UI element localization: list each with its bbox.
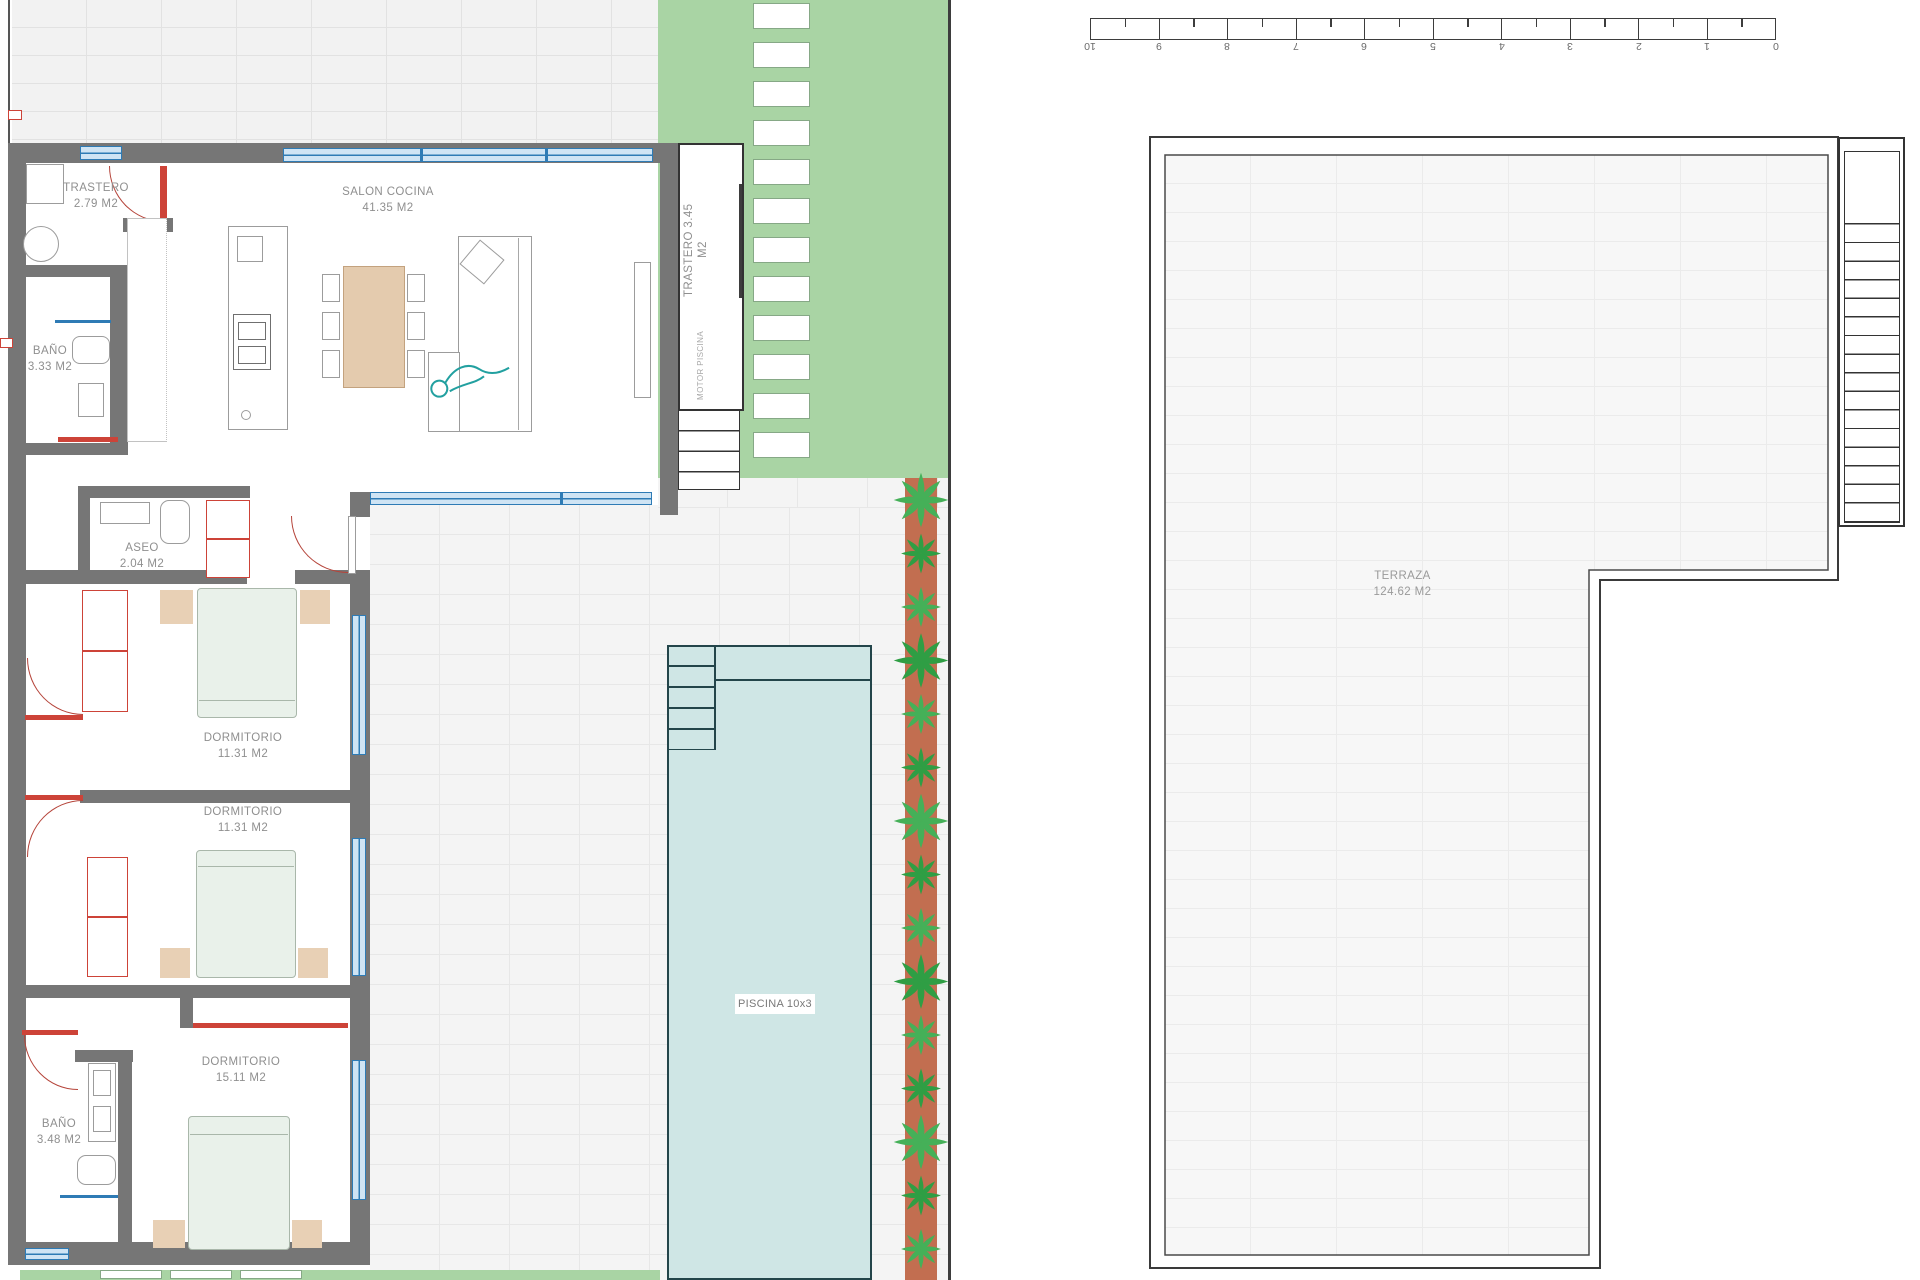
island-dot bbox=[241, 410, 251, 420]
pool-label-text: PISCINA 10x3 bbox=[738, 998, 812, 1010]
scale-label: 1 bbox=[1704, 40, 1710, 52]
door-leaf-dorm2 bbox=[25, 795, 83, 800]
shower-line-bano2 bbox=[60, 1195, 118, 1198]
scale-cell bbox=[1571, 19, 1640, 39]
pool-lane-line bbox=[716, 679, 870, 681]
room-label-trastero2: TRASTERO 3.45 M2 bbox=[682, 195, 710, 305]
wall-dorm2-bottom bbox=[25, 985, 370, 998]
plant-icon bbox=[901, 587, 941, 627]
sink-bano1 bbox=[78, 383, 104, 417]
room-name: TERRAZA bbox=[1330, 568, 1475, 584]
room-area: 3.33 M2 bbox=[10, 359, 90, 375]
plot-boundary-right bbox=[948, 0, 951, 1280]
plant-icon bbox=[894, 473, 949, 528]
room-label-dorm1: DORMITORIO 11.31 M2 bbox=[172, 730, 314, 762]
room-area: 11.31 M2 bbox=[172, 820, 314, 836]
window-dorm3 bbox=[352, 1060, 366, 1200]
wall-aseo-top bbox=[78, 486, 250, 498]
window-tick bbox=[560, 492, 563, 505]
chair bbox=[407, 312, 425, 340]
slider-dorm3 bbox=[193, 1023, 348, 1028]
wall-corridor-stub bbox=[180, 985, 193, 1028]
bed-dorm1 bbox=[197, 588, 297, 718]
dining-table bbox=[343, 266, 405, 388]
room-label-aseo: ASEO 2.04 M2 bbox=[98, 540, 186, 572]
scale-label: 3 bbox=[1567, 40, 1573, 52]
scale-cell bbox=[1091, 19, 1160, 39]
wall-bano1-bottom bbox=[8, 443, 128, 455]
room-name: ASEO bbox=[98, 540, 186, 556]
toilet-bano2 bbox=[77, 1155, 116, 1185]
window-dorm2 bbox=[352, 838, 366, 976]
stepping-stone bbox=[753, 81, 810, 107]
stepping-stones-bottom bbox=[0, 1270, 400, 1280]
room-area: 15.11 M2 bbox=[170, 1070, 312, 1086]
wall-bano1-right bbox=[110, 265, 128, 455]
wardrobe-shelf bbox=[206, 538, 250, 540]
nightstand bbox=[298, 948, 328, 978]
scale-label: 4 bbox=[1499, 40, 1505, 52]
wardrobe-shelf bbox=[87, 916, 128, 918]
window-tick bbox=[545, 148, 548, 162]
north-patio-tiles bbox=[12, 0, 658, 143]
window-north-small bbox=[80, 146, 122, 160]
stepping-stone bbox=[753, 120, 810, 146]
window-tick bbox=[420, 148, 423, 162]
wall-west bbox=[8, 143, 26, 1265]
room-label-bano2: BAÑO 3.48 M2 bbox=[17, 1116, 101, 1148]
room-name: TRASTERO bbox=[48, 180, 144, 196]
chair bbox=[322, 274, 340, 302]
plant-icon bbox=[894, 633, 949, 688]
room-label-salon: SALON COCINA 41.35 M2 bbox=[318, 184, 458, 216]
door-leaf-dorm1 bbox=[25, 715, 83, 720]
chair bbox=[407, 274, 425, 302]
plant-icon bbox=[901, 534, 941, 574]
room-area: 2.04 M2 bbox=[98, 556, 186, 572]
stepping-stone bbox=[753, 42, 810, 68]
bed-fold-line bbox=[198, 866, 294, 867]
wall-east-salon bbox=[660, 143, 678, 515]
stepping-stone bbox=[240, 1270, 302, 1279]
plant-icon bbox=[894, 1115, 949, 1170]
storage-door-line bbox=[739, 184, 742, 298]
pool-label: PISCINA 10x3 bbox=[735, 994, 815, 1014]
pool-steps bbox=[668, 646, 716, 750]
room-name: DORMITORIO bbox=[172, 730, 314, 746]
plant-icon bbox=[901, 855, 941, 895]
oven-detail bbox=[238, 322, 266, 340]
window-bano2 bbox=[25, 1248, 69, 1260]
wall-dorm1-top-b bbox=[295, 570, 370, 584]
plant-icon bbox=[901, 748, 941, 788]
door-leaf-entry bbox=[348, 516, 356, 574]
bed-dorm3 bbox=[188, 1116, 290, 1250]
stepping-stone bbox=[753, 354, 810, 380]
red-marker bbox=[8, 110, 22, 120]
tv-sideboard bbox=[634, 262, 651, 398]
nightstand bbox=[160, 590, 193, 624]
room-label-trastero1: TRASTERO 2.79 M2 bbox=[48, 180, 144, 212]
stepping-stones bbox=[753, 0, 810, 478]
scale-cell bbox=[1639, 19, 1708, 39]
plant-icon bbox=[894, 794, 949, 849]
scale-bar-labels: 109876543210 bbox=[1090, 40, 1776, 56]
scale-cell bbox=[1297, 19, 1366, 39]
window-south-salon bbox=[370, 492, 652, 505]
door-arc-entry bbox=[291, 516, 348, 573]
room-area: 11.31 M2 bbox=[172, 746, 314, 762]
stepping-stone bbox=[100, 1270, 162, 1279]
plant-icon bbox=[901, 1176, 941, 1216]
scale-label: 10 bbox=[1084, 40, 1096, 52]
stepping-stone bbox=[753, 198, 810, 224]
person-icon bbox=[422, 348, 522, 406]
scale-cell bbox=[1434, 19, 1503, 39]
bed-fold-line bbox=[199, 700, 295, 701]
room-name: TRASTERO bbox=[683, 231, 695, 297]
scale-label: 5 bbox=[1430, 40, 1436, 52]
chair bbox=[322, 350, 340, 378]
toilet-aseo bbox=[160, 500, 190, 544]
stepping-stone bbox=[170, 1270, 232, 1279]
nightstand bbox=[160, 948, 190, 978]
vanity-basin bbox=[93, 1070, 111, 1096]
bed-fold-line bbox=[190, 1134, 288, 1135]
round-basket bbox=[23, 226, 59, 262]
wall-bano1-top bbox=[8, 265, 110, 277]
oven-detail bbox=[238, 346, 266, 364]
room-label-dorm3: DORMITORIO 15.11 M2 bbox=[170, 1054, 312, 1086]
plant-icon bbox=[901, 1069, 941, 1109]
plant-icon bbox=[901, 1229, 941, 1269]
wardrobe-shelf bbox=[82, 650, 128, 652]
wall-dorm1-dorm2 bbox=[80, 790, 370, 803]
stepping-stone bbox=[753, 315, 810, 341]
scale-label: 7 bbox=[1293, 40, 1299, 52]
scale-cell bbox=[1160, 19, 1229, 39]
kitchen-counter bbox=[127, 218, 167, 442]
scale-cell bbox=[1365, 19, 1434, 39]
scale-label: 2 bbox=[1636, 40, 1642, 52]
stepping-stone bbox=[753, 159, 810, 185]
wall-aseo-left bbox=[78, 486, 90, 581]
room-name: DORMITORIO bbox=[170, 1054, 312, 1070]
room-label-dorm2: DORMITORIO 11.31 M2 bbox=[172, 804, 314, 836]
stepping-stone bbox=[753, 3, 810, 29]
stepping-stone bbox=[753, 393, 810, 419]
stepping-stone bbox=[753, 432, 810, 458]
terrace-outline bbox=[1145, 130, 1910, 1275]
outdoor-steps bbox=[678, 410, 740, 490]
stair-treads bbox=[1845, 206, 1899, 522]
wall-bano2-right bbox=[118, 1050, 132, 1242]
room-area: 41.35 M2 bbox=[318, 200, 458, 216]
scale-cell bbox=[1708, 19, 1776, 39]
floor-plan-canvas: PISCINA 10x3 TRASTERO 3.45 M2 MOTOR PISC… bbox=[0, 0, 1920, 1280]
door-arc-bano2 bbox=[24, 1035, 78, 1090]
scale-label: 6 bbox=[1361, 40, 1367, 52]
room-name: DORMITORIO bbox=[172, 804, 314, 820]
wall-south-salon-pier bbox=[350, 492, 370, 517]
plant-icon bbox=[894, 954, 949, 1009]
room-area: 124.62 M2 bbox=[1330, 584, 1475, 600]
scale-label: 8 bbox=[1224, 40, 1230, 52]
scale-bar-cells bbox=[1091, 19, 1775, 39]
nightstand bbox=[300, 590, 330, 624]
slider-bano1 bbox=[58, 437, 118, 442]
nightstand bbox=[292, 1220, 322, 1248]
window-north-band bbox=[283, 148, 653, 162]
room-label-bano1: BAÑO 3.33 M2 bbox=[10, 343, 90, 375]
label-motor-piscina: MOTOR PISCINA bbox=[696, 318, 706, 413]
room-name: BAÑO bbox=[10, 343, 90, 359]
scale-cell bbox=[1228, 19, 1297, 39]
room-label-terraza: TERRAZA 124.62 M2 bbox=[1330, 568, 1475, 600]
door-arc-dorm2 bbox=[27, 800, 83, 857]
scale-label: 0 bbox=[1773, 40, 1779, 52]
room-name: BAÑO bbox=[17, 1116, 101, 1132]
plot-boundary-left bbox=[8, 0, 10, 143]
window-dorm1 bbox=[352, 615, 366, 755]
stepping-stone bbox=[753, 237, 810, 263]
scale-bar bbox=[1090, 18, 1776, 40]
door-arc-dorm1 bbox=[27, 658, 83, 715]
room-area: 2.79 M2 bbox=[48, 196, 144, 212]
plant-icon bbox=[901, 908, 941, 948]
scale-cell bbox=[1502, 19, 1571, 39]
plant-icon bbox=[901, 1015, 941, 1055]
island-sink bbox=[237, 236, 263, 262]
nightstand bbox=[153, 1220, 185, 1248]
plant-icon bbox=[901, 694, 941, 734]
scale-label: 9 bbox=[1156, 40, 1162, 52]
room-name: SALON COCINA bbox=[318, 184, 458, 200]
terrace-stairs-inner bbox=[1844, 151, 1900, 523]
chair bbox=[322, 312, 340, 340]
bed-dorm2 bbox=[196, 850, 296, 978]
room-name: MOTOR PISCINA bbox=[696, 331, 705, 400]
shower-line-bano1 bbox=[55, 320, 111, 323]
sink-aseo bbox=[100, 502, 150, 524]
stepping-stone bbox=[753, 276, 810, 302]
room-area: 3.48 M2 bbox=[17, 1132, 101, 1148]
